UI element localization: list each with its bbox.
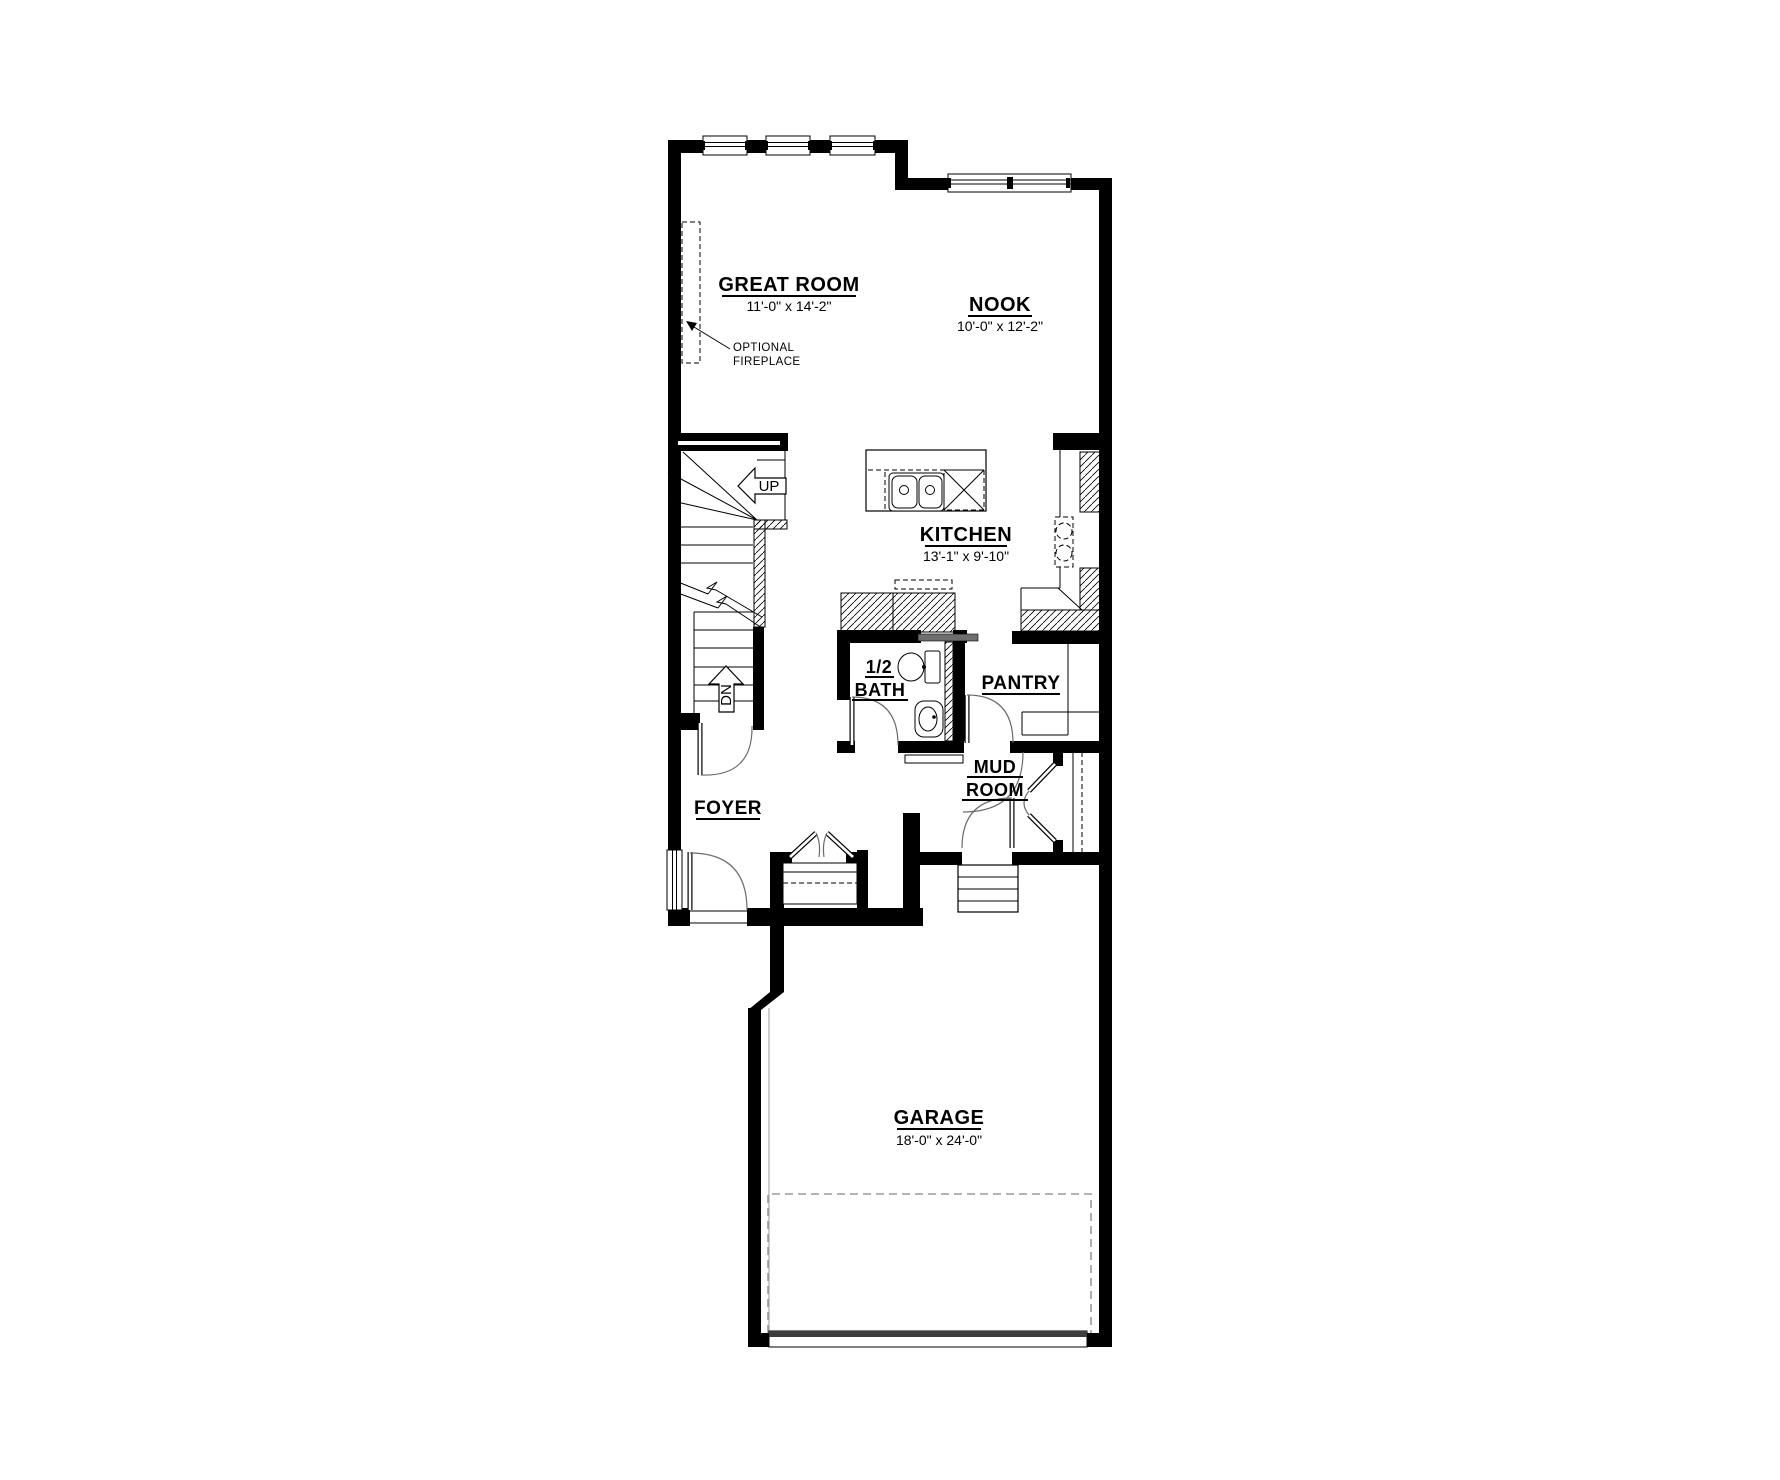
garage-dim: 18'-0" x 24'-0" [896, 1132, 982, 1148]
stair-halfwall-cap [754, 520, 787, 529]
garage-label: GARAGE [894, 1107, 985, 1129]
fireplace-dashed-outline [682, 222, 700, 363]
stairs-up-label: UP [759, 478, 780, 495]
refrigerator-cabinet [1080, 452, 1100, 512]
garage-elements [768, 1008, 1091, 1347]
kitchen-island [866, 450, 986, 511]
mud-room-label-top: MUD [974, 757, 1017, 777]
counter-hatched-band [1021, 610, 1100, 631]
nook-window [947, 174, 1071, 192]
counter-hatched-column [1080, 568, 1100, 610]
garage-corner-bottom-left [748, 1333, 769, 1347]
closet-jamb-south [1053, 840, 1063, 854]
front-sidelite-window [667, 850, 682, 910]
wall-pantry-south [1010, 741, 1100, 753]
upper-cabinet-dashed [895, 580, 952, 589]
bath-door [852, 697, 898, 745]
fireplace-note-line1: OPTIONAL [733, 342, 795, 354]
pantry-door [967, 695, 1013, 743]
great-room-window-2 [765, 136, 811, 155]
kitchen-wall-counter [1021, 450, 1100, 631]
wall-bath-left [837, 630, 850, 700]
wall-left [668, 140, 681, 850]
stair-halfwall-hatched [754, 520, 765, 627]
wall-garage-north-corner [668, 908, 690, 926]
wall-right [1099, 178, 1112, 1347]
garage-entry-steps [958, 865, 1018, 912]
half-bath-label-bottom: BATH [855, 680, 906, 700]
great-room-dim: 11'-0" x 14'-2" [746, 298, 831, 314]
pedestal-sink [915, 701, 943, 737]
toilet [898, 651, 940, 683]
entry-wall-right [857, 850, 868, 910]
floor-plan-drawing: GREAT ROOM 11'-0" x 14'-2" NOOK 10'-0" x… [0, 0, 1780, 1480]
closet-doors [1024, 764, 1055, 841]
range-counter [841, 580, 955, 632]
great-room-window-1 [702, 136, 748, 155]
wall-oven-appliance [1055, 517, 1073, 567]
fireplace-leader-arrowhead [686, 321, 697, 331]
mud-room-label-bottom: ROOM [966, 780, 1024, 800]
entry-jamb-left [770, 852, 792, 863]
stair-winder-treads [668, 451, 785, 563]
understair-door [700, 723, 752, 775]
exterior-and-interior-walls [668, 140, 1112, 1347]
stairs-down-label: DN [718, 684, 735, 706]
front-door-threshold [690, 908, 747, 926]
pantry-label: PANTRY [982, 673, 1061, 694]
wall-garage-diagonal [748, 992, 784, 1010]
pocket-door-wall-hatched [945, 642, 953, 741]
fireplace-leader-line [694, 327, 730, 349]
front-door [690, 852, 747, 910]
stair-break-line [678, 582, 762, 628]
wall-divider-slit [678, 441, 780, 445]
entry-stoop [783, 863, 857, 904]
wall-divider-nook-kitchen [1053, 433, 1112, 450]
garage-corner-bottom-right [1087, 1333, 1112, 1347]
wall-bath-south [898, 741, 964, 753]
garage-door [769, 1331, 1087, 1347]
wall-bath-right [953, 642, 965, 741]
nook-label: NOOK [969, 294, 1031, 316]
half-bath-label-top: 1/2 [866, 657, 893, 677]
foyer-label: FOYER [694, 798, 762, 819]
garage-apron-dashed [768, 1194, 1091, 1333]
kitchen-dim: 13'-1" x 9'-10" [923, 548, 1009, 564]
wall-foyer-south-vertical [770, 852, 784, 992]
kitchen-label: KITCHEN [920, 524, 1012, 546]
great-room-label: GREAT ROOM [718, 274, 859, 296]
floor-plan-canvas: GREAT ROOM 11'-0" x 14'-2" NOOK 10'-0" x… [0, 0, 1780, 1480]
double-sink [889, 473, 944, 511]
garage-entry-door [962, 798, 1012, 848]
wall-pantry-north [1012, 631, 1099, 644]
wall-stairs-bottom [668, 713, 700, 730]
wall-stair-halfwall-lower [753, 627, 764, 730]
pocket-door-leaf [918, 634, 978, 641]
entry-double-doors [790, 833, 853, 857]
great-room-window-3 [829, 136, 876, 155]
mudroom-bench [905, 755, 963, 763]
wall-garage-left [748, 1008, 761, 1347]
nook-dim: 10'-0" x 12'-2" [957, 318, 1043, 334]
wall-mudroom-south-west [920, 852, 962, 865]
fireplace-note-line2: FIREPLACE [733, 356, 801, 368]
